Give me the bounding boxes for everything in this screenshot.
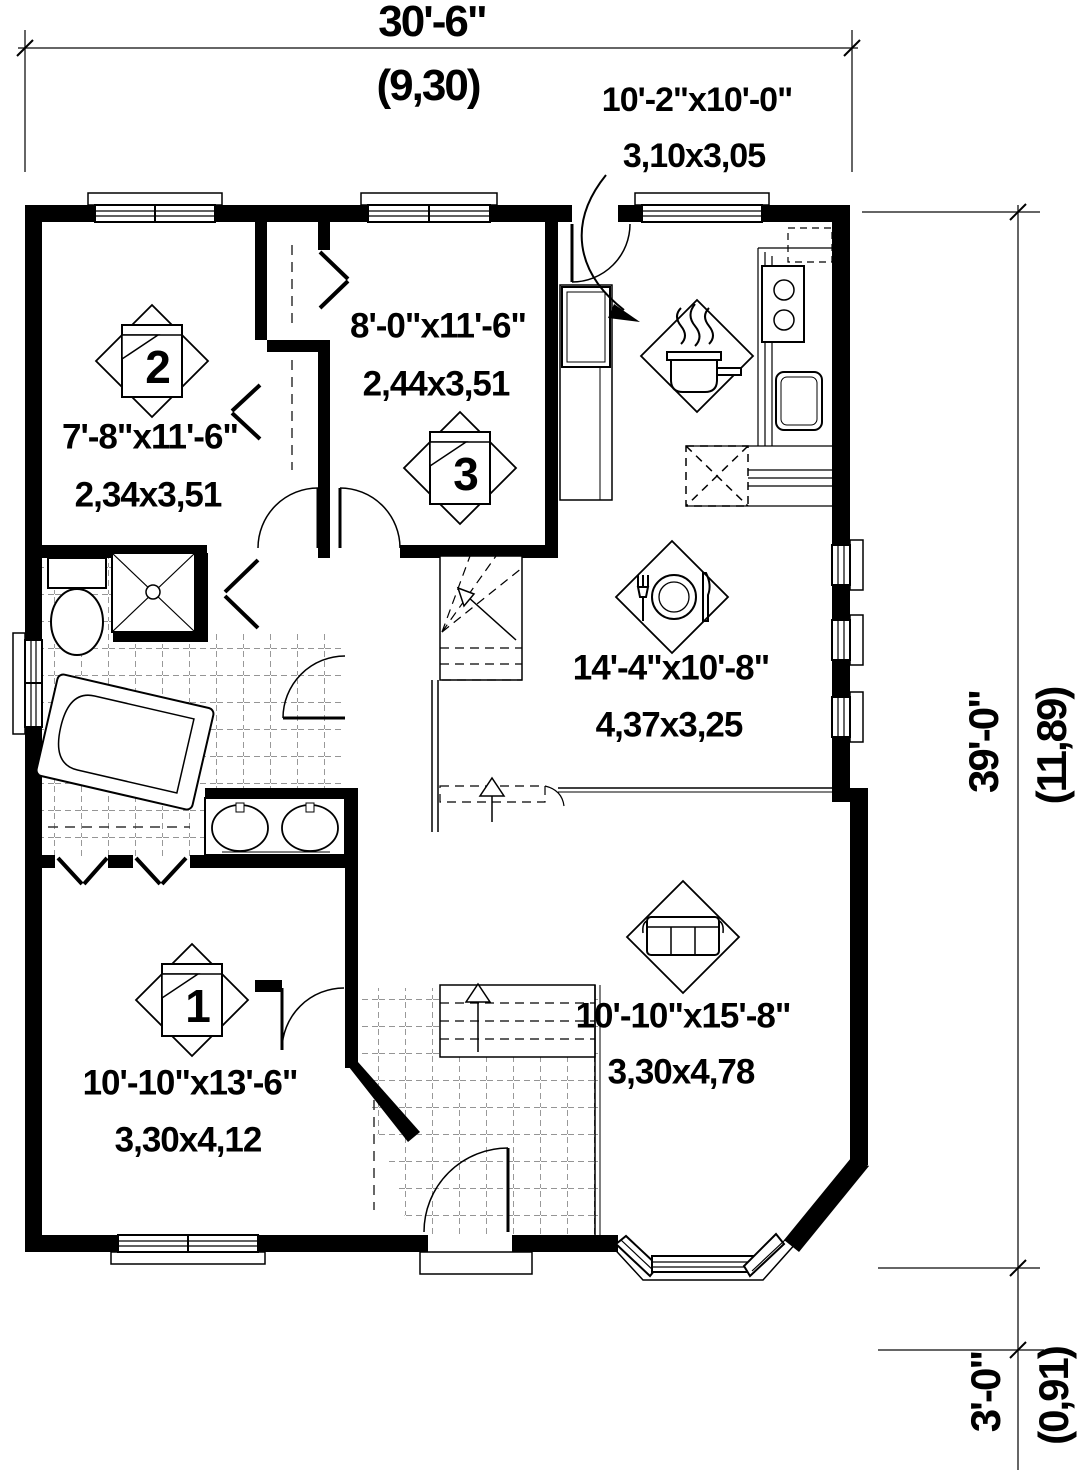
cooking-pot-icon xyxy=(641,300,753,412)
overall-width-metric: (9,30) xyxy=(377,64,480,108)
bay-depth-metric: (0,91) xyxy=(1033,1347,1075,1445)
bedroom-3-size-imperial: 8'-0"x11'-6" xyxy=(350,309,526,344)
dishwasher xyxy=(686,446,748,506)
bedroom-2-size-metric: 2,34x3,51 xyxy=(75,478,222,513)
overall-width-imperial: 30'-6" xyxy=(378,0,485,44)
entry-stairs-up xyxy=(440,984,595,1057)
kitchen-size-imperial: 10'-2"x10'-0" xyxy=(602,83,792,117)
dining-size-metric: 4,37x3,25 xyxy=(596,708,743,743)
floor-plan-drawing: 2 3 1 xyxy=(0,0,1080,1482)
overall-height-imperial: 39'-0" xyxy=(963,691,1005,793)
sofa-icon xyxy=(627,881,739,993)
shower xyxy=(112,553,195,632)
front-step xyxy=(420,1252,532,1274)
vanity xyxy=(205,798,345,855)
bay-depth-imperial: 3'-0" xyxy=(965,1352,1007,1433)
dining-size-imperial: 14'-4"x10'-8" xyxy=(573,651,769,686)
bedroom-1-size-metric: 3,30x4,12 xyxy=(115,1123,262,1158)
living-size-metric: 3,30x4,78 xyxy=(608,1055,755,1090)
faucet xyxy=(236,803,244,812)
place-setting-icon xyxy=(616,541,728,653)
bed-icon: 2 xyxy=(96,305,208,417)
svg-text:3: 3 xyxy=(453,448,479,500)
closet-bifold-icon xyxy=(136,858,186,884)
kitchen-size-metric: 3,10x3,05 xyxy=(623,139,765,173)
basement-stair-halfwall xyxy=(440,778,564,822)
svg-text:2: 2 xyxy=(145,341,171,393)
bed-icon: 3 xyxy=(404,412,516,524)
faucet xyxy=(306,803,314,812)
upper-cabinet xyxy=(788,228,832,262)
stove xyxy=(762,266,804,342)
kitchen-sink xyxy=(776,372,822,430)
svg-text:1: 1 xyxy=(185,980,211,1032)
floor-plan-page: 2 3 1 xyxy=(0,0,1080,1482)
bed-icon: 1 xyxy=(136,944,248,1056)
bedroom-3-size-metric: 2,44x3,51 xyxy=(363,367,510,402)
main-stairs-up xyxy=(440,556,522,680)
bedroom-2-size-imperial: 7'-8"x11'-6" xyxy=(62,420,238,455)
closet-bifold-icon xyxy=(58,858,107,884)
closet-bifold-icon xyxy=(320,252,348,308)
bedroom-1-size-imperial: 10'-10"x13'-6" xyxy=(83,1066,298,1101)
living-size-imperial: 10'-10"x15'-8" xyxy=(576,999,791,1034)
overall-height-metric: (11,89) xyxy=(1031,688,1073,805)
stair-railing xyxy=(432,680,438,832)
stair-direction-arrow xyxy=(480,778,504,796)
bay-window xyxy=(608,1234,797,1280)
toilet xyxy=(48,558,106,655)
